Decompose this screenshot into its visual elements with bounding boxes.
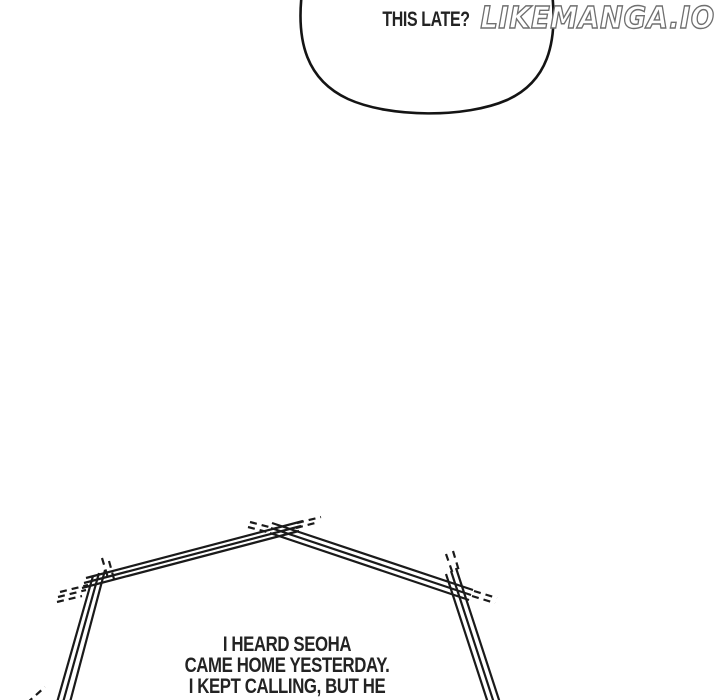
- site-watermark: LIKEMANGA.IO: [481, 0, 715, 38]
- dialogue-line: I KEPT CALLING, BUT HE: [167, 676, 407, 697]
- panel-artwork: [0, 0, 720, 700]
- dialogue-line: CAME HOME YESTERDAY.: [167, 655, 407, 676]
- manga-page: THIS LATE? LIKEMANGA.IO I HEARD SEOHA CA…: [0, 0, 720, 700]
- dialogue-line: I HEARD SEOHA: [167, 634, 407, 655]
- bottom-bubble-dialogue-text: I HEARD SEOHA CAME HOME YESTERDAY. I KEP…: [167, 634, 407, 697]
- top-bubble-dialogue-text: THIS LATE?: [358, 9, 495, 30]
